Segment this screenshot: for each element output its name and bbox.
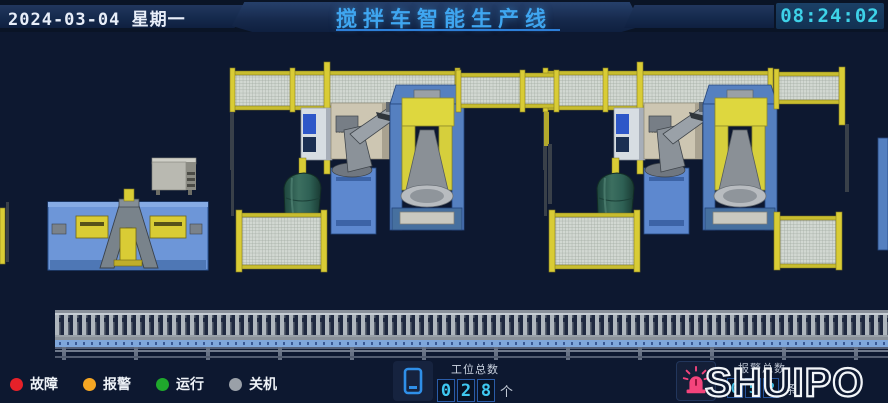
- clock: 08:24:02: [776, 3, 884, 29]
- running-status-dot: [156, 378, 169, 391]
- off-status-dot: [229, 378, 242, 391]
- mixer-line-dashboard: 2024-03-04 星期一 搅拌车智能生产线 08:24:02: [0, 0, 888, 403]
- safety-fence-right: [774, 67, 849, 270]
- stations-digit-2: 2: [457, 379, 475, 402]
- robot-cell-1: [230, 62, 464, 272]
- fixture-platform: [48, 189, 208, 270]
- legend-label-alarm: 报警: [103, 374, 131, 394]
- production-scene: KUKA: [0, 32, 888, 360]
- clamp-left: [76, 216, 108, 238]
- left-fixture-station: [0, 158, 208, 270]
- fault-status-dot: [10, 378, 23, 391]
- equipment-cabinet: [152, 158, 196, 195]
- stations-counter-digits: 0 2 8 个: [436, 379, 514, 402]
- shuipo-logo-text: SHUIPO: [705, 362, 864, 403]
- status-bar: 故障 报警 运行 关机 工位总数 0: [0, 360, 888, 403]
- stations-digit-1: 0: [437, 379, 455, 402]
- stations-counter-label: 工位总数: [436, 361, 514, 377]
- hmi-device-icon: [402, 367, 424, 395]
- conveyor: [55, 310, 888, 360]
- stations-digit-3: 8: [477, 379, 495, 402]
- clamp-right: [150, 216, 186, 238]
- legend-label-fault: 故障: [30, 374, 58, 394]
- legend-item-off: 关机: [229, 374, 277, 394]
- right-edge-panel: [878, 138, 888, 250]
- device-icon-button[interactable]: [393, 361, 433, 401]
- header: 2024-03-04 星期一 搅拌车智能生产线 08:24:02: [0, 0, 888, 32]
- legend-label-running: 运行: [176, 374, 204, 394]
- legend-item-fault: 故障: [10, 374, 58, 394]
- legend-item-alarm: 报警: [83, 374, 131, 394]
- status-legend: 故障 报警 运行 关机: [10, 374, 277, 394]
- legend-label-off: 关机: [249, 374, 277, 394]
- alarm-status-dot: [83, 378, 96, 391]
- stations-counter-unit: 个: [500, 381, 513, 400]
- legend-item-running: 运行: [156, 374, 204, 394]
- shuipo-logo: SHUIPO: [703, 362, 887, 403]
- title-underline: [336, 29, 560, 31]
- robot-cell-2: [543, 62, 777, 272]
- stations-counter: 工位总数 0 2 8 个: [436, 361, 514, 402]
